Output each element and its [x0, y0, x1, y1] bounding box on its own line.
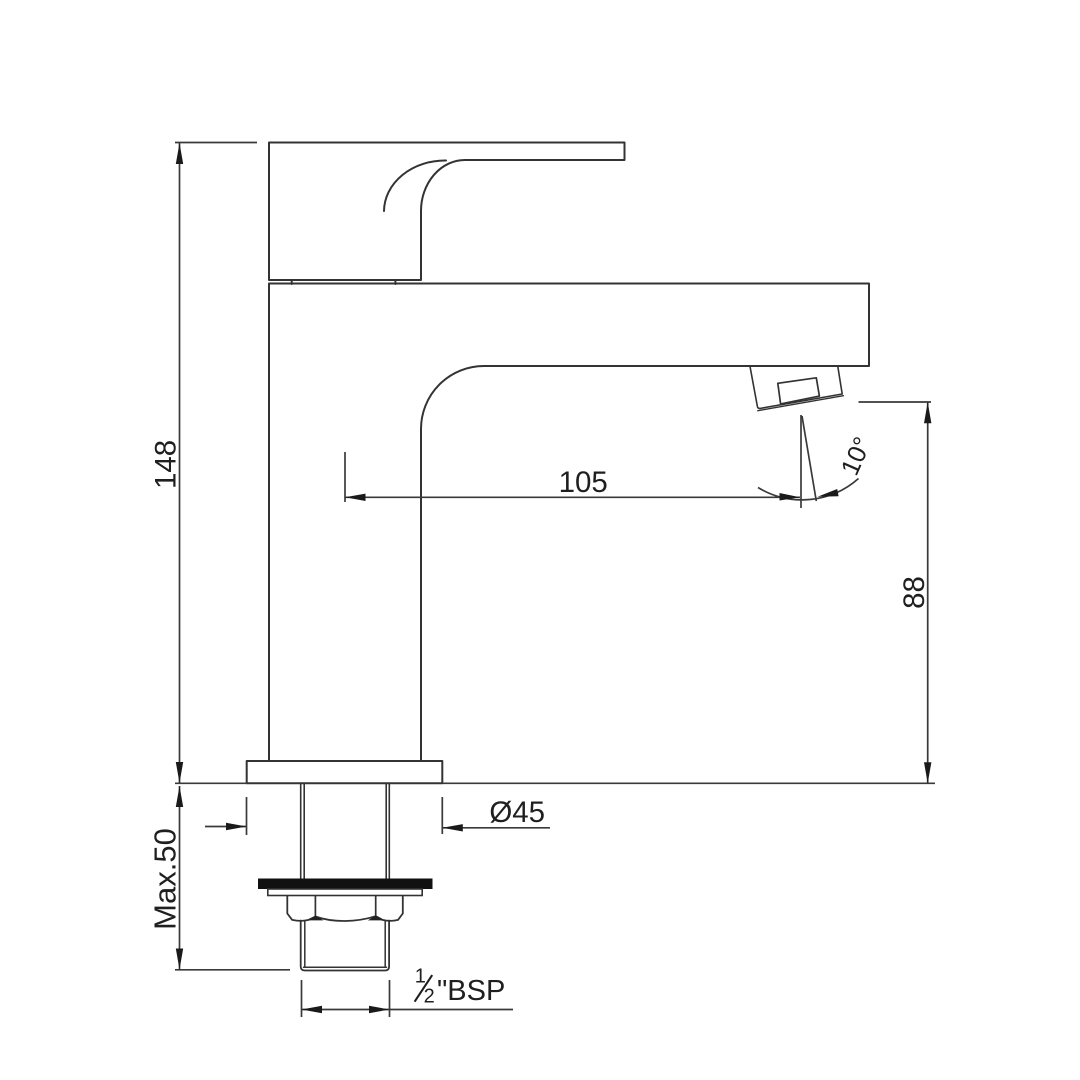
svg-text:2: 2 — [424, 985, 435, 1007]
svg-text:Ø45: Ø45 — [489, 796, 545, 829]
svg-text:1: 1 — [415, 966, 426, 988]
svg-text:148: 148 — [150, 440, 183, 489]
svg-text:Max.50: Max.50 — [148, 828, 183, 930]
svg-text:88: 88 — [898, 576, 931, 609]
svg-text:"BSP: "BSP — [437, 975, 505, 1007]
svg-text:105: 105 — [559, 466, 608, 499]
